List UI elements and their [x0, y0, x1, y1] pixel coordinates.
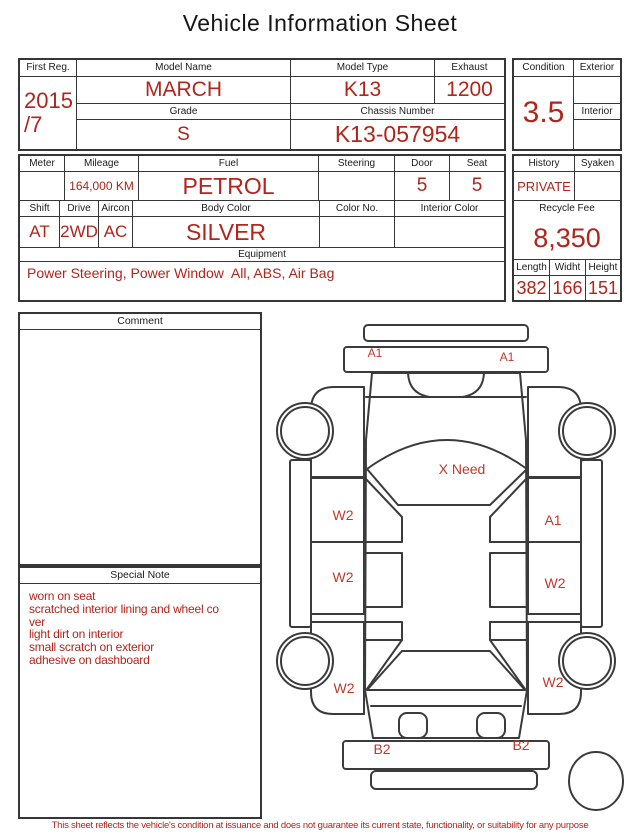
special-note-text: worn on seat scratched interior lining a…: [20, 584, 260, 673]
meter-label: Meter: [20, 156, 64, 172]
interior-color-value: [395, 217, 504, 247]
aircon-value: AC: [99, 217, 132, 247]
comment-label: Comment: [20, 314, 260, 330]
door-label: Door: [395, 156, 449, 172]
car-damage-diagram: A1 A1 X Need W2 A1 W2 W2 W2 W2 B2 B2: [262, 303, 640, 835]
fuel-value: PETROL: [139, 172, 318, 200]
identity-table: First Reg. 2015 /7 Model Name MARCH Mode…: [18, 58, 506, 151]
body-color-value: SILVER: [133, 217, 319, 247]
vehicle-information-sheet: Vehicle Information Sheet First Reg. 201…: [0, 0, 640, 835]
drive-value: 2WD: [60, 217, 98, 247]
damage-marker-right-rear-fender: W2: [543, 674, 564, 690]
seat-value: 5: [450, 172, 504, 200]
shift-label: Shift: [20, 201, 59, 217]
history-label: History: [514, 156, 574, 172]
damage-marker-left-rear-door: W2: [333, 569, 354, 585]
exterior-label: Exterior: [574, 60, 620, 77]
history-panel: History PRIVATE Syaken Recycle Fee 8,350…: [512, 154, 622, 302]
color-no-label: Color No.: [320, 201, 394, 217]
chassis-number-value: K13-057954: [290, 120, 504, 149]
height-label: Height: [586, 260, 620, 276]
shift-value: AT: [20, 217, 59, 247]
exhaust-value: 1200: [434, 77, 504, 104]
model-name-label: Model Name: [77, 60, 290, 77]
door-value: 5: [395, 172, 449, 200]
aircon-label: Aircon: [99, 201, 132, 217]
seat-label: Seat: [450, 156, 504, 172]
equipment-value: Power Steering, Power Window All, ABS, A…: [20, 262, 504, 300]
chassis-number-label: Chassis Number: [290, 104, 504, 120]
damage-marker-left-front-door: W2: [333, 507, 354, 523]
interior-label: Interior: [574, 104, 620, 120]
special-note-label: Special Note: [20, 568, 260, 584]
width-label: Widht: [550, 260, 585, 276]
recycle-fee-label: Recycle Fee: [514, 201, 620, 217]
mileage-label: Mileage: [65, 156, 138, 172]
interior-color-label: Interior Color: [395, 201, 504, 217]
condition-value: 3.5: [514, 77, 574, 149]
length-label: Length: [514, 260, 549, 276]
history-value: PRIVATE: [514, 172, 574, 200]
height-value: 151: [586, 276, 620, 300]
recycle-fee-value: 8,350: [514, 217, 620, 259]
comment-box: Comment: [18, 312, 262, 566]
model-name-value: MARCH: [77, 77, 290, 104]
damage-marker-right-rear-door: W2: [545, 575, 566, 591]
condition-panel: Condition 3.5 Exterior Interior: [512, 58, 622, 151]
damage-marker-front-bumper-right: A1: [500, 350, 515, 364]
damage-marker-right-front-door: A1: [544, 512, 561, 528]
syaken-label: Syaken: [575, 156, 620, 172]
page-title: Vehicle Information Sheet: [0, 10, 640, 37]
first-reg-value: 2015 /7: [20, 77, 77, 149]
exterior-value: [574, 77, 620, 104]
damage-marker-windshield: X Need: [439, 461, 486, 477]
meter-value: [20, 172, 64, 200]
condition-label: Condition: [514, 60, 574, 77]
syaken-value: [575, 172, 620, 200]
equipment-label: Equipment: [20, 248, 504, 262]
grade-label: Grade: [77, 104, 290, 120]
drive-label: Drive: [60, 201, 98, 217]
damage-marker-rear-bumper-right: B2: [512, 737, 529, 753]
color-no-value: [320, 217, 394, 247]
damage-marker-left-rear-fender: W2: [334, 680, 355, 696]
damage-marker-front-bumper-left: A1: [368, 346, 383, 360]
body-color-label: Body Color: [133, 201, 319, 217]
damage-marker-rear-bumper-left: B2: [373, 741, 390, 757]
car-top-view-drawing: [262, 303, 640, 835]
special-note-box: Special Note worn on seat scratched inte…: [18, 566, 262, 819]
length-value: 382: [514, 276, 549, 300]
disclaimer-text: This sheet reflects the vehicle's condit…: [0, 820, 640, 831]
steering-label: Steering: [319, 156, 394, 172]
width-value: 166: [550, 276, 585, 300]
model-type-value: K13: [290, 77, 434, 104]
fuel-label: Fuel: [139, 156, 318, 172]
model-type-label: Model Type: [290, 60, 434, 77]
mileage-value: 164,000 KM: [65, 172, 138, 200]
exhaust-label: Exhaust: [434, 60, 504, 77]
first-reg-label: First Reg.: [20, 60, 77, 77]
interior-value: [574, 120, 620, 149]
grade-value: S: [77, 120, 290, 149]
comment-text: [20, 330, 260, 342]
steering-value: [319, 172, 394, 200]
spec-table: Meter Mileage 164,000 KM Fuel PETROL Ste…: [18, 154, 506, 302]
